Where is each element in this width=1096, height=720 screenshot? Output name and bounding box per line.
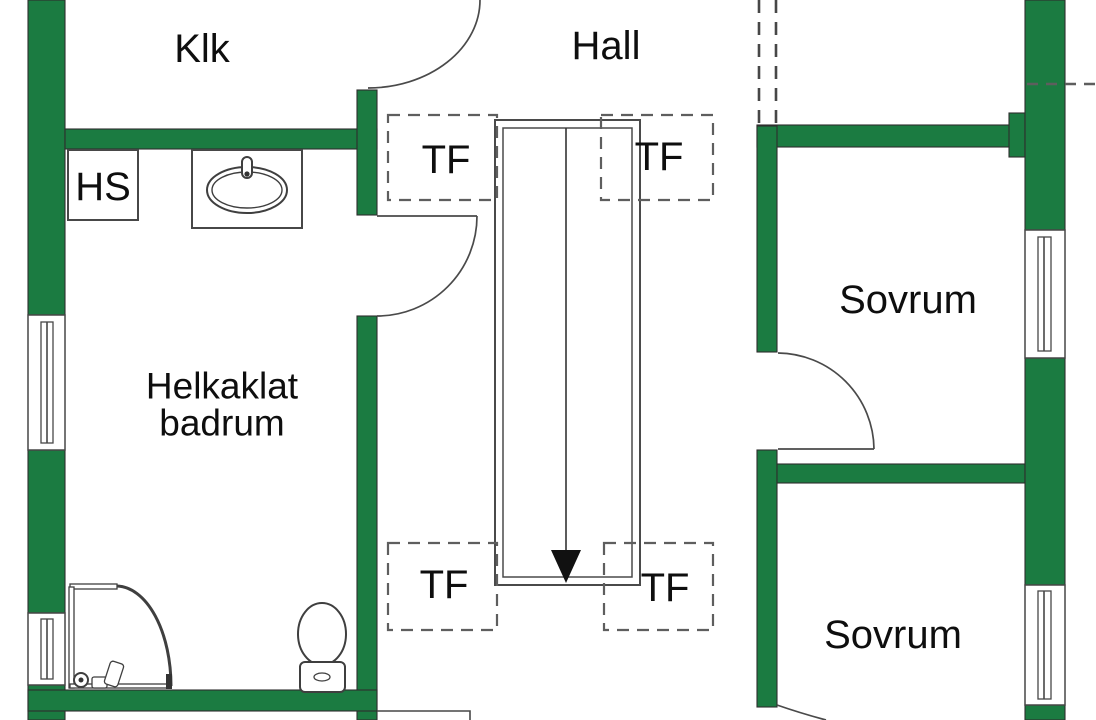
window-icon (28, 315, 65, 450)
wall-left-upper (28, 0, 65, 315)
marker-label-tf-top-left: TF (422, 138, 471, 182)
window-icon (1025, 585, 1065, 705)
door-arc-bedroom-top-icon (778, 353, 874, 449)
label-hs-cabinet: HS (75, 165, 131, 209)
floor-plan-page: Klk Hall HS Helkaklat badrum Sovrum Sovr… (0, 0, 1096, 720)
window-icon (28, 613, 65, 685)
wall-bathroom-top (65, 129, 377, 149)
room-label-bathroom-line1: Helkaklat (146, 366, 299, 407)
marker-label-tf-top-right: TF (635, 135, 684, 179)
wall-right-upper (1025, 0, 1065, 230)
room-label-bedroom-top: Sovrum (839, 278, 977, 322)
room-label-hall: Hall (572, 24, 641, 68)
toilet-icon (298, 603, 346, 692)
marker-label-tf-bottom-left: TF (420, 563, 469, 607)
wall-bedroom-left-lower (757, 450, 777, 707)
staircase (495, 120, 640, 585)
wall-junction-cap (1009, 113, 1025, 157)
marker-label-tf-bottom-right: TF (641, 566, 690, 610)
floor-plan-drawing: Klk Hall HS Helkaklat badrum Sovrum Sovr… (0, 0, 1096, 720)
wall-hall-bedroom (757, 125, 1025, 147)
stairs-outer (495, 120, 640, 585)
door-arc-bedroom-bottom-icon (777, 705, 826, 720)
window-icon (1025, 230, 1065, 358)
room-label-bathroom-line2: badrum (159, 403, 284, 444)
shower-door-handle (166, 674, 172, 689)
room-label-closet: Klk (174, 27, 231, 71)
wall-interior-lower (357, 316, 377, 720)
door-arc-bathroom-icon (377, 216, 477, 316)
lower-level-outline (377, 711, 470, 720)
wall-between-bedrooms (777, 464, 1025, 483)
wall-interior-upper (357, 90, 377, 215)
wall-left-middle (28, 450, 65, 613)
corner-shower-icon (69, 584, 172, 689)
wall-bedroom-left-upper (757, 126, 777, 352)
door-arc-closet-icon (368, 0, 480, 88)
room-label-bedroom-bottom: Sovrum (824, 613, 962, 657)
sink-icon (192, 150, 302, 228)
wall-right-middle (1025, 358, 1065, 585)
wall-bathroom-bottom (28, 690, 377, 711)
wall-right-lower (1025, 705, 1065, 720)
